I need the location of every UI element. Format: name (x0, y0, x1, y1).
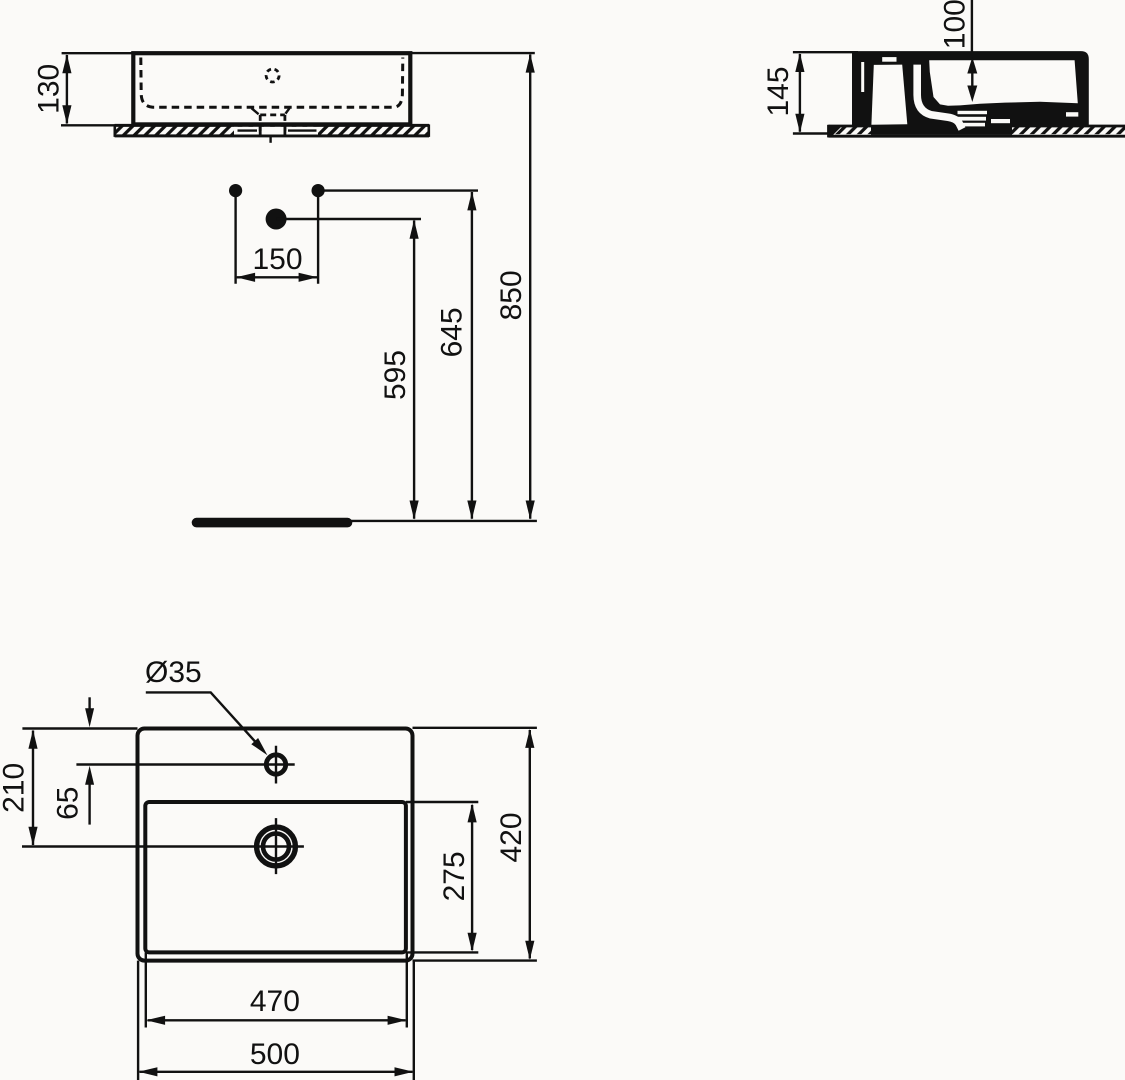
svg-text:210: 210 (0, 763, 30, 813)
svg-text:Ø35: Ø35 (145, 656, 202, 689)
svg-text:150: 150 (252, 243, 302, 276)
svg-text:65: 65 (51, 787, 84, 820)
svg-text:850: 850 (495, 270, 528, 320)
svg-text:145: 145 (762, 66, 795, 116)
svg-text:645: 645 (436, 307, 469, 357)
svg-text:130: 130 (33, 64, 66, 114)
svg-text:500: 500 (250, 1038, 300, 1071)
svg-text:100: 100 (939, 0, 972, 49)
svg-text:595: 595 (379, 350, 412, 400)
svg-text:420: 420 (495, 812, 528, 862)
svg-text:470: 470 (250, 985, 300, 1018)
svg-text:275: 275 (438, 851, 471, 901)
